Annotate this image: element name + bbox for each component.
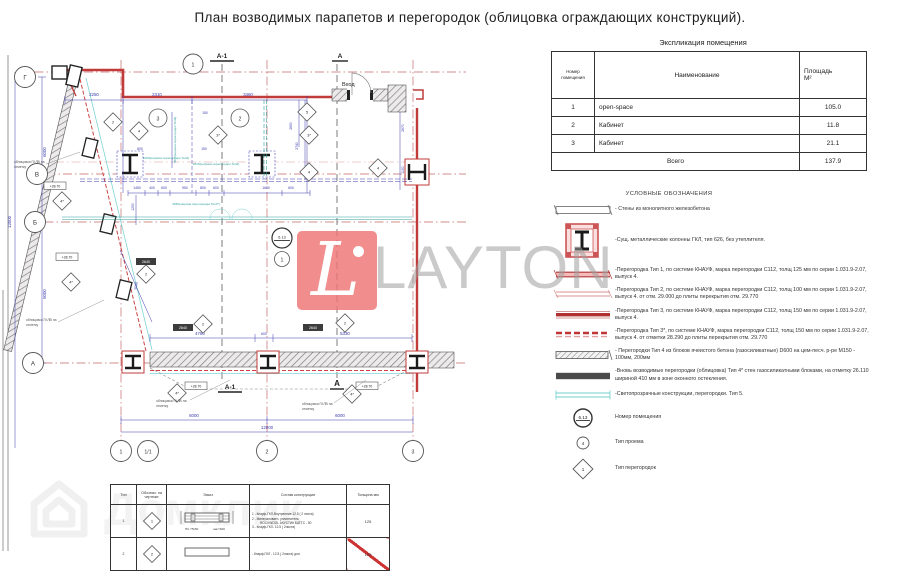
explication-table: Номерпомещения Наименование ПлощадьМ² 1 … bbox=[551, 51, 867, 171]
spec-col-type: Тип bbox=[111, 485, 137, 505]
col-number: Номер bbox=[566, 69, 580, 74]
svg-text:облицовка ГКЛВ на: облицовка ГКЛВ на bbox=[156, 399, 187, 403]
svg-text:отметку: отметку bbox=[302, 407, 315, 411]
spec-col-composition: Состав конструкции bbox=[250, 485, 347, 505]
svg-text:2: 2 bbox=[202, 323, 204, 327]
sheet-frame bbox=[3, 55, 8, 551]
col-name: Наименование bbox=[595, 52, 800, 99]
svg-text:2640: 2640 bbox=[142, 260, 150, 264]
drawing-sheet: { "title": "План возводимых парапетов и … bbox=[0, 0, 900, 551]
svg-text:3*: 3* bbox=[216, 134, 220, 138]
legend-item-partition-type4s: -Вновь возводимые перегородки (облицовка… bbox=[551, 368, 873, 382]
type1-sketch: ПС 75х50 шаг=600 bbox=[171, 507, 245, 535]
type1-diamond-icon: 1 bbox=[142, 511, 162, 531]
entrance-label: Вход bbox=[342, 82, 355, 88]
partition-type1-icon bbox=[552, 269, 614, 280]
svg-text:1250: 1250 bbox=[131, 203, 135, 211]
spec-col-mark: Обознач. на чертеже bbox=[137, 485, 167, 505]
svg-text:2250: 2250 bbox=[89, 92, 99, 97]
table-row: 2 Кабинет 11.8 bbox=[552, 117, 867, 135]
room-number-tag: 6.13 bbox=[272, 228, 292, 248]
svg-text:6000: 6000 bbox=[189, 413, 199, 418]
svg-text:12000: 12000 bbox=[7, 215, 12, 228]
table-total-row: Всего 137.9 bbox=[552, 153, 867, 171]
svg-text:облицовка ГКЛВ на: облицовка ГКЛВ на bbox=[14, 160, 45, 164]
svg-text:4: 4 bbox=[308, 171, 310, 175]
svg-text:2640: 2640 bbox=[179, 326, 187, 330]
type2-diamond-icon: 2 bbox=[142, 544, 162, 564]
svg-text:1: 1 bbox=[582, 466, 585, 471]
legend-item-metal-columns: -Сущ. металлические колонны ГКЛ, тип 626… bbox=[551, 222, 873, 260]
svg-text:4: 4 bbox=[377, 167, 379, 171]
legend-item-partition-type2: -Перегородка Тип 2, по системе КНАУФ, ма… bbox=[551, 287, 873, 301]
legend-item-translucent: -Светопрозрачные конструкции, перегородк… bbox=[551, 389, 873, 401]
translucent-partition-icon bbox=[552, 389, 614, 401]
svg-text:6000: 6000 bbox=[42, 147, 47, 157]
metal-column-icon bbox=[563, 222, 603, 260]
svg-text:2: 2 bbox=[344, 322, 346, 326]
svg-text:2640: 2640 bbox=[309, 326, 317, 330]
svg-text:1600: 1600 bbox=[262, 186, 270, 190]
legend-item-room-number: 6.13 Номер помещения bbox=[551, 407, 873, 429]
svg-text:3: 3 bbox=[157, 117, 160, 123]
total-value: 137.9 bbox=[800, 153, 867, 171]
svg-text:150: 150 bbox=[201, 147, 207, 151]
svg-text:2740: 2740 bbox=[295, 142, 299, 150]
svg-text:В: В bbox=[35, 172, 39, 179]
svg-text:600: 600 bbox=[261, 332, 267, 336]
partition-type2-icon bbox=[552, 289, 614, 299]
svg-text:5: 5 bbox=[306, 111, 308, 115]
legend-item-partition-type3: -Перегородка Тип 3, по системе КНАУФ, ма… bbox=[551, 308, 873, 322]
partition-spec-table: Тип Обознач. на чертеже Эскиз Состав кон… bbox=[110, 484, 390, 571]
partition-type4-icon bbox=[552, 349, 614, 361]
room-number-icon: 6.13 bbox=[571, 407, 595, 429]
svg-text:1450: 1450 bbox=[133, 186, 141, 190]
svg-text:шаг=600: шаг=600 bbox=[213, 527, 225, 531]
col-area: Площадь bbox=[804, 68, 832, 75]
svg-text:ПС 75х50: ПС 75х50 bbox=[185, 527, 199, 531]
svg-text:1: 1 bbox=[192, 63, 195, 69]
svg-text:4*: 4* bbox=[175, 392, 179, 396]
legend-item-opening-type: 4 Тип проема bbox=[551, 435, 873, 451]
svg-text:А-1: А-1 bbox=[217, 53, 228, 60]
floor-plan: 2250 2310 3460 150 150 800 3570(ширина п… bbox=[0, 0, 560, 551]
svg-text:+28.70: +28.70 bbox=[191, 385, 202, 389]
spec-row-1: 1 1 ПС 75х50 шаг=600 bbox=[111, 505, 390, 538]
explication-title: Экспликация помещения bbox=[551, 38, 855, 47]
svg-text:отметку: отметку bbox=[156, 404, 169, 408]
svg-text:950: 950 bbox=[182, 186, 188, 190]
svg-text:2: 2 bbox=[112, 121, 114, 125]
svg-text:6.13: 6.13 bbox=[278, 236, 285, 240]
svg-text:+28.70: +28.70 bbox=[362, 385, 373, 389]
svg-text:600: 600 bbox=[288, 186, 294, 190]
svg-text:400: 400 bbox=[149, 186, 155, 190]
legend-item-partition-type1: -Перегородка Тип 1, по системе КНАУФ, ма… bbox=[551, 267, 873, 281]
svg-text:5030: 5030 bbox=[133, 282, 139, 290]
svg-text:А: А bbox=[334, 379, 340, 388]
svg-text:12000: 12000 bbox=[261, 425, 274, 430]
svg-text:+28.70: +28.70 bbox=[50, 185, 61, 189]
svg-text:4560(ширина перегородки Тип3*): 4560(ширина перегородки Тип3*) bbox=[172, 202, 220, 206]
legend-item-partition-type3s: -Перегородка Тип 3*, по системе КНАУФ, м… bbox=[551, 328, 873, 342]
partition-type-marker-icon: 1 bbox=[570, 457, 596, 481]
legend-heading: УСЛОВНЫЕ ОБОЗНАЧЕНИЯ bbox=[569, 191, 769, 197]
svg-text:4: 4 bbox=[138, 130, 140, 134]
legend-item-monolithic-wall: - Стены из монолитного железобетона bbox=[551, 204, 873, 216]
svg-text:1: 1 bbox=[120, 450, 123, 456]
svg-text:отметку: отметку bbox=[26, 323, 39, 327]
spec-col-sketch: Эскиз bbox=[167, 485, 250, 505]
table-row: 1 open-space 105.0 bbox=[552, 99, 867, 117]
right-column: Экспликация помещения Номерпомещения Наи… bbox=[551, 38, 881, 487]
svg-text:+28.70: +28.70 bbox=[62, 256, 73, 260]
svg-text:4*: 4* bbox=[350, 393, 354, 397]
svg-text:отметку: отметку bbox=[14, 165, 27, 169]
svg-text:6000: 6000 bbox=[335, 413, 345, 418]
svg-text:800: 800 bbox=[200, 186, 206, 190]
svg-text:2: 2 bbox=[266, 450, 269, 456]
svg-text:облицовка ГКЛВ на: облицовка ГКЛВ на bbox=[26, 318, 57, 322]
svg-text:600: 600 bbox=[161, 186, 167, 190]
svg-text:600: 600 bbox=[213, 186, 219, 190]
section-labels: А-1 А А-1 А bbox=[210, 53, 348, 392]
svg-text:3460: 3460 bbox=[243, 92, 253, 97]
svg-text:2: 2 bbox=[239, 117, 242, 123]
svg-text:2670: 2670 bbox=[401, 124, 405, 132]
svg-text:1150: 1150 bbox=[401, 166, 405, 173]
partition-type3s-icon bbox=[552, 330, 614, 339]
svg-text:А-1: А-1 bbox=[225, 384, 236, 391]
drawing-title: План возводимых парапетов и перегородок … bbox=[130, 10, 810, 25]
opening-type-icon: 4 bbox=[571, 435, 595, 451]
spec-col-thickness: Толщина мм bbox=[347, 485, 390, 505]
svg-text:3: 3 bbox=[412, 450, 415, 456]
svg-text:150: 150 bbox=[202, 111, 208, 115]
svg-text:1/1: 1/1 bbox=[144, 450, 151, 456]
svg-text:6000: 6000 bbox=[42, 289, 47, 299]
svg-text:2310: 2310 bbox=[152, 92, 162, 97]
type2-sketch bbox=[171, 544, 245, 564]
partition-type4s-icon bbox=[552, 370, 614, 382]
svg-text:4*: 4* bbox=[69, 281, 73, 285]
monolithic-wall-icon bbox=[552, 204, 614, 216]
partition-type3-icon bbox=[552, 309, 614, 320]
total-label: Всего bbox=[552, 153, 800, 171]
svg-text:А: А bbox=[338, 53, 343, 60]
legend: УСЛОВНЫЕ ОБОЗНАЧЕНИЯ - Стены из монолитн… bbox=[551, 191, 873, 481]
spec-row-2: 2 2 - Кнауф-ГКЛ - 12.5 ( 2листа) для 100 bbox=[111, 538, 390, 571]
svg-text:2650: 2650 bbox=[289, 122, 293, 130]
svg-text:1: 1 bbox=[281, 258, 284, 264]
walls bbox=[4, 66, 454, 392]
svg-text:3*: 3* bbox=[307, 134, 311, 138]
svg-text:2: 2 bbox=[145, 273, 147, 277]
svg-text:2810(ширина перегородки Тип2): 2810(ширина перегородки Тип2) bbox=[193, 162, 240, 166]
svg-text:4*: 4* bbox=[60, 200, 64, 204]
legend-item-partition-type-marker: 1 Тип перегородок bbox=[551, 457, 873, 481]
svg-text:6.13: 6.13 bbox=[579, 415, 588, 420]
svg-text:1600(ширина перегородки Тип2): 1600(ширина перегородки Тип2) bbox=[143, 156, 190, 160]
svg-text:Б: Б bbox=[33, 220, 37, 227]
table-row: 3 Кабинет 21.1 bbox=[552, 135, 867, 153]
legend-item-partition-type4: - Перегородки Тип 4 из блоков ячеистого … bbox=[551, 348, 873, 362]
svg-text:облицовка ГКЛВ на: облицовка ГКЛВ на bbox=[302, 402, 333, 406]
dimension-labels: 2250 2310 3460 150 150 800 3570(ширина п… bbox=[7, 92, 405, 430]
svg-text:800: 800 bbox=[137, 147, 143, 151]
